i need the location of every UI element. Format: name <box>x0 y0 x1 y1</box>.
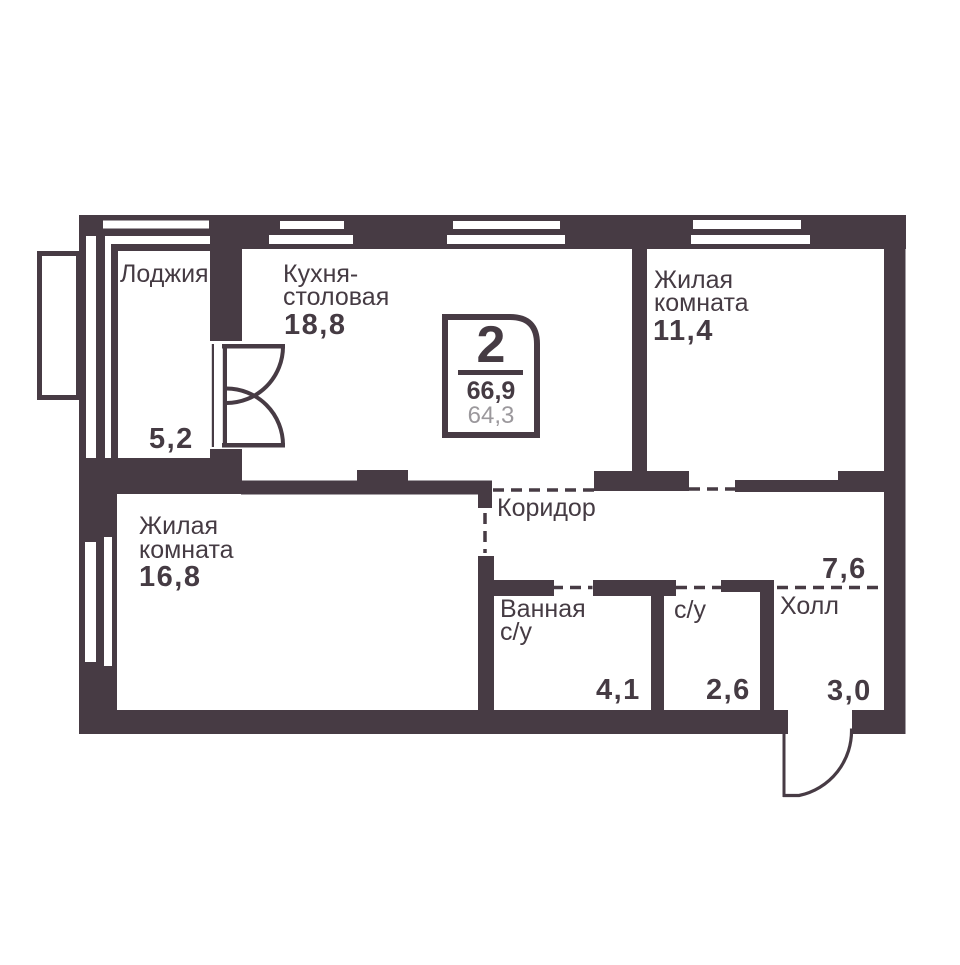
svg-text:5,2: 5,2 <box>149 423 194 455</box>
svg-text:столовая: столовая <box>283 283 389 311</box>
svg-text:7,6: 7,6 <box>822 553 867 585</box>
svg-text:2,6: 2,6 <box>706 674 751 706</box>
svg-text:18,8: 18,8 <box>284 309 346 341</box>
svg-text:2: 2 <box>477 316 506 374</box>
svg-text:Коридор: Коридор <box>497 494 596 522</box>
svg-text:с/у: с/у <box>674 596 706 624</box>
svg-text:с/у: с/у <box>500 618 532 646</box>
svg-text:11,4: 11,4 <box>653 315 714 347</box>
svg-text:комната: комната <box>139 536 234 564</box>
svg-text:4,1: 4,1 <box>596 674 641 706</box>
svg-text:64,3: 64,3 <box>468 402 515 429</box>
svg-text:Холл: Холл <box>780 592 839 620</box>
svg-text:комната: комната <box>654 289 749 317</box>
svg-text:16,8: 16,8 <box>139 561 201 593</box>
svg-text:3,0: 3,0 <box>827 675 872 707</box>
svg-text:66,9: 66,9 <box>467 377 516 405</box>
svg-text:Лоджия: Лоджия <box>120 260 209 288</box>
